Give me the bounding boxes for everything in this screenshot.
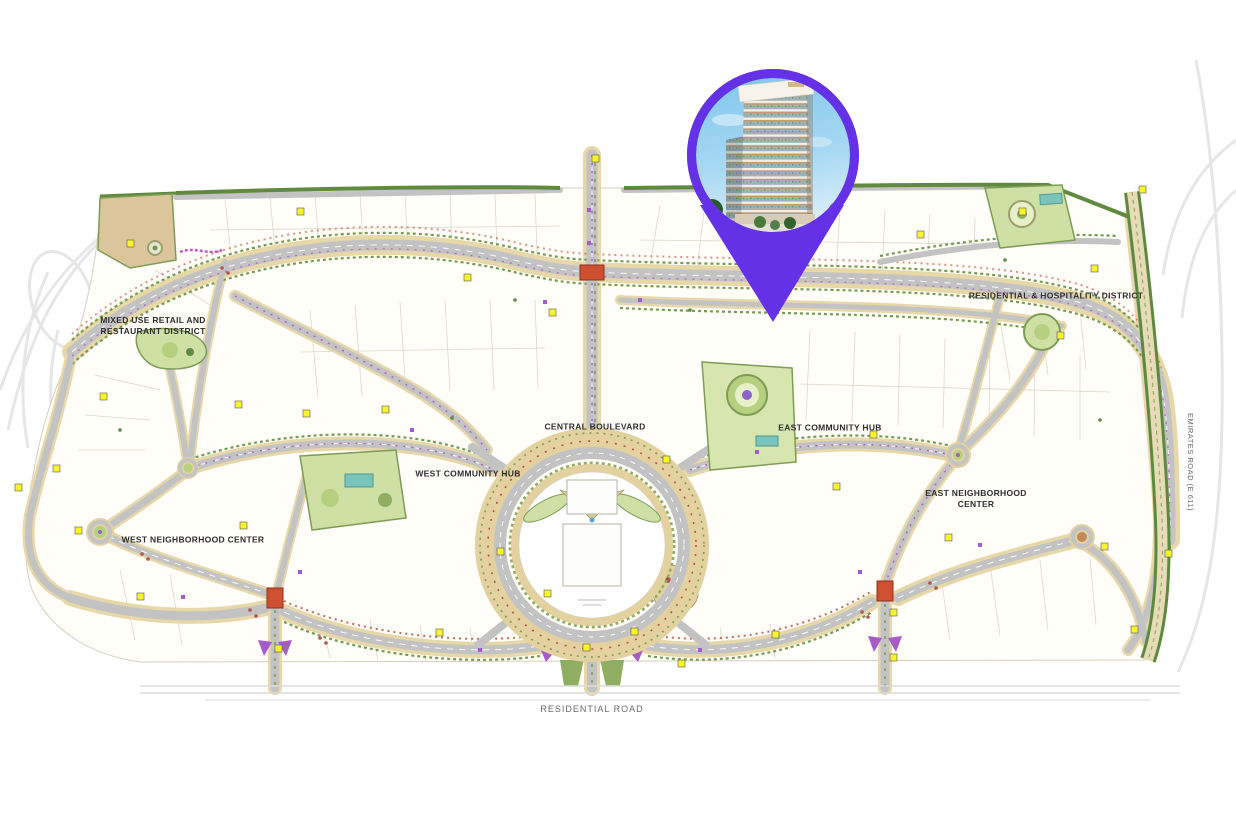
entry-garden-east xyxy=(600,660,624,686)
central-plaza xyxy=(480,433,704,657)
masterplan-screenshot: MIXED USE RETAIL AND RESTAURANT DISTRICT… xyxy=(0,0,1236,824)
label-central-boulevard: CENTRAL BOULEVARD xyxy=(490,421,700,432)
residential-road-lines xyxy=(140,686,1180,700)
master-plan-map xyxy=(0,0,1236,824)
label-west-neighborhood-center: WEST NEIGHBORHOOD CENTER xyxy=(118,534,268,545)
label-residential-road: RESIDENTIAL ROAD xyxy=(487,704,697,716)
park-west xyxy=(300,450,406,530)
label-emirates-road: EMIRATES ROAD (E 611) xyxy=(1185,392,1195,532)
entry-garden-west xyxy=(560,660,584,686)
label-mixed-use-district: MIXED USE RETAIL AND RESTAURANT DISTRICT xyxy=(88,315,218,337)
label-east-community-hub: EAST COMMUNITY HUB xyxy=(773,422,888,433)
label-west-community-hub: WEST COMMUNITY HUB xyxy=(411,468,526,479)
northwest-plot xyxy=(98,194,176,268)
label-east-neighborhood-center: EAST NEIGHBORHOOD CENTER xyxy=(914,488,1039,510)
label-residential-hospitality-district: RESIDENTIAL & HOSPITALITY DISTRICT xyxy=(969,290,1144,301)
